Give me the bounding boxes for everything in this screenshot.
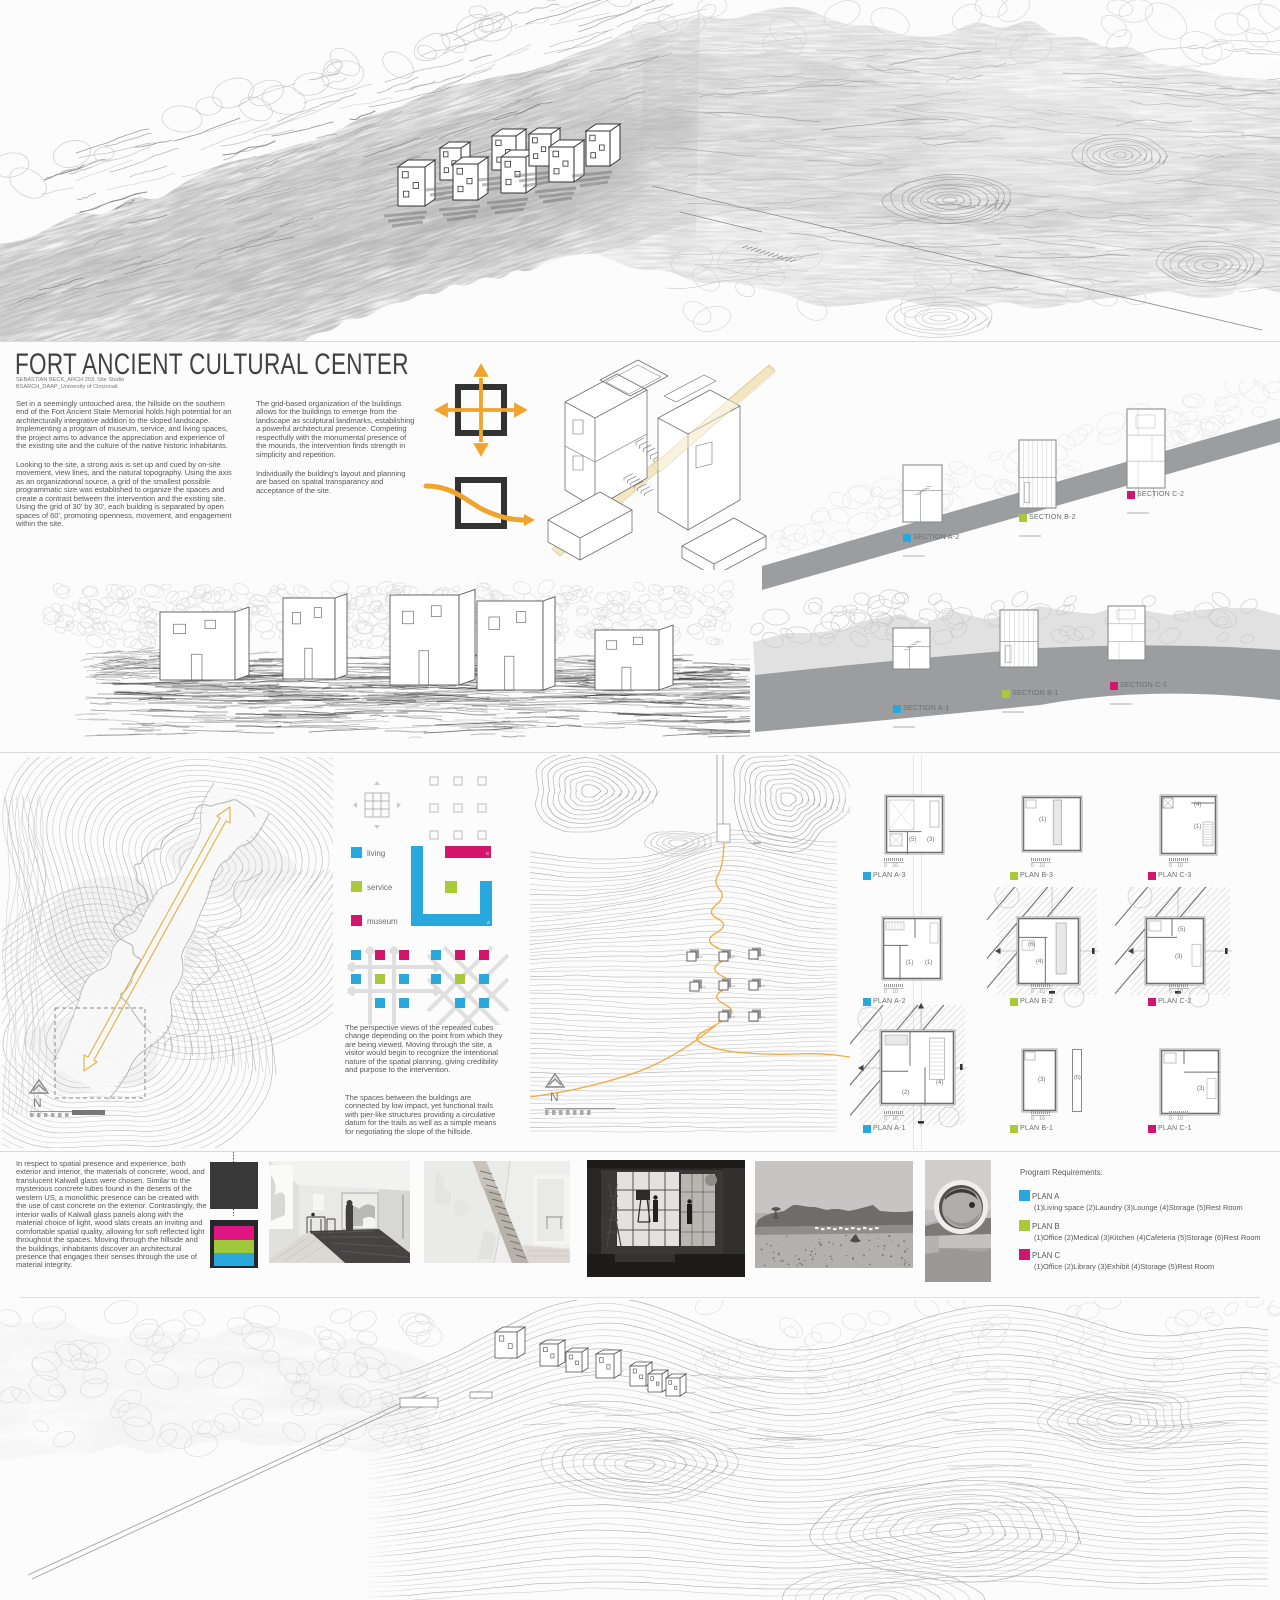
svg-text:(1): (1): [925, 960, 932, 966]
svg-text:museum: museum: [367, 917, 398, 926]
svg-text:(6): (6): [1028, 942, 1035, 948]
svg-text:(5): (5): [909, 837, 916, 843]
svg-text:(1): (1): [906, 960, 913, 966]
svg-text:service: service: [367, 883, 393, 892]
svg-text:(5): (5): [1178, 927, 1185, 933]
svg-text:(3): (3): [1197, 1086, 1204, 1092]
svg-text:(4): (4): [1036, 959, 1043, 965]
svg-text:(3): (3): [927, 837, 934, 843]
svg-text:(3): (3): [1038, 1077, 1045, 1083]
svg-text:(1): (1): [1039, 817, 1046, 823]
svg-text:N: N: [33, 1096, 42, 1110]
svg-text:living: living: [367, 849, 385, 858]
svg-text:(4): (4): [1194, 802, 1201, 808]
svg-text:N: N: [550, 1090, 559, 1104]
svg-text:(4): (4): [936, 1080, 943, 1086]
svg-text:A: A: [487, 920, 490, 925]
svg-text:(1): (1): [1194, 824, 1201, 830]
svg-text:(2): (2): [902, 1090, 909, 1096]
svg-text:(3): (3): [1175, 954, 1182, 960]
